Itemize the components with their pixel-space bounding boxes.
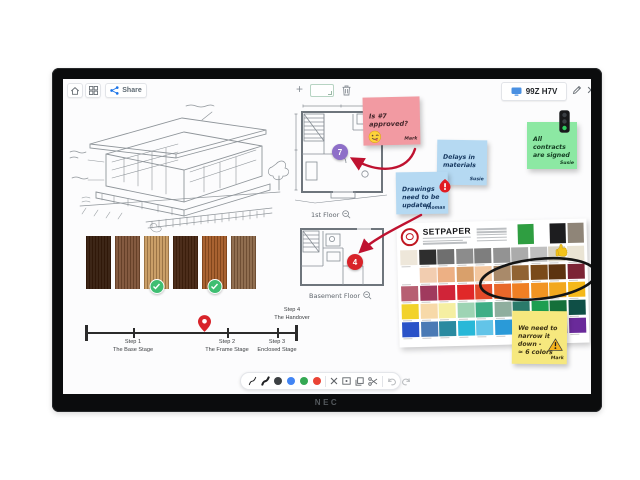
session-code-text: 99Z H7V — [526, 87, 558, 96]
redo-button[interactable] — [401, 377, 411, 386]
note-author: Mark — [404, 136, 417, 142]
timeline-step-number: Step 1 — [101, 338, 165, 346]
menu-button[interactable] — [85, 83, 101, 98]
copy-icon — [355, 377, 364, 386]
floor-plan-first-label: 1st Floor — [311, 210, 351, 219]
numbered-marker-7[interactable]: 7 — [332, 144, 348, 160]
home-icon — [70, 86, 80, 96]
home-button[interactable] — [67, 83, 83, 98]
palette-swatch — [567, 264, 584, 279]
timeline-tick — [227, 328, 229, 338]
toolbar-divider — [325, 376, 326, 387]
pencil-icon — [572, 85, 582, 95]
timeline-step-number: Step 3 — [245, 338, 309, 346]
palette-swatch — [512, 265, 529, 280]
palette-swatch — [530, 265, 547, 280]
palette-swatch — [493, 266, 510, 281]
palette-swatch — [568, 318, 585, 333]
share-button[interactable]: Share — [105, 83, 147, 98]
sticky-note-contracts-text: All contracts are signed — [533, 136, 570, 159]
timeline-step-label: Step 3Enclosed Stage — [245, 338, 309, 354]
nec-brand-logo: NEC — [52, 398, 602, 407]
timeline-step-name: Enclosed Stage — [245, 346, 309, 354]
traffic-light-icon — [559, 110, 570, 133]
warning-triangle-icon — [548, 338, 563, 351]
palette-swatch — [549, 264, 566, 279]
palette-swatch — [457, 321, 474, 336]
sticky-note-narrow-colors[interactable]: We need to narrow it down - ≈ 6 colors M… — [512, 311, 567, 364]
palette-swatch — [456, 249, 473, 264]
note-author: Thomas — [425, 206, 445, 212]
marker-stroke-icon — [261, 376, 270, 386]
note-author: Susie — [560, 161, 574, 167]
wood-swatch[interactable] — [202, 236, 227, 289]
palette-swatch — [438, 285, 455, 300]
palette-swatch — [419, 268, 436, 283]
close-button[interactable]: ✕ — [584, 83, 591, 97]
palette-swatch — [438, 267, 455, 282]
timeline[interactable]: Step 1The Base StageStep 2The Frame Stag… — [85, 319, 298, 365]
approved-check-icon — [207, 279, 222, 294]
floor-plan-basement[interactable] — [297, 226, 387, 288]
palette-top-swatch — [567, 223, 584, 243]
note-author: Susie — [470, 177, 484, 183]
palette-swatch — [475, 284, 492, 299]
palette-swatch — [456, 267, 473, 282]
winking-emoji-icon — [368, 130, 381, 143]
palette-swatch — [530, 247, 547, 262]
marker-tool-button[interactable] — [261, 376, 270, 386]
pen-tool-button[interactable] — [248, 376, 257, 386]
share-button-label: Share — [122, 87, 141, 94]
sticky-note-approval-text: Is #7 approved? — [369, 112, 408, 129]
palette-swatch — [474, 248, 491, 263]
wood-swatch[interactable] — [173, 236, 198, 289]
pen-stroke-icon — [248, 376, 257, 386]
palette-fine-print — [477, 227, 507, 242]
palette-swatch — [437, 249, 454, 264]
palette-top-swatches — [517, 223, 584, 245]
map-pin-icon[interactable] — [198, 315, 211, 332]
drawing-toolbar — [240, 372, 401, 390]
palette-swatch — [401, 286, 418, 301]
current-page-thumbnail[interactable] — [310, 84, 334, 97]
timeline-step-label: Step 4The Handover — [260, 306, 324, 322]
palette-top-swatch — [549, 223, 566, 243]
house-sketch-drawing[interactable] — [66, 100, 294, 238]
alert-drop-icon — [438, 178, 452, 193]
approved-check-icon — [149, 279, 164, 294]
palette-swatch — [421, 322, 438, 337]
palette-top-swatch — [517, 224, 534, 244]
numbered-marker-4[interactable]: 4 — [347, 254, 363, 270]
add-page-button[interactable]: + — [296, 82, 303, 96]
pen-color-dot[interactable] — [287, 377, 295, 385]
wood-swatch[interactable] — [86, 236, 111, 289]
whiteboard-screen: Share + 99Z H7V ✕ — [63, 79, 591, 394]
palette-swatch — [511, 247, 528, 262]
palette-swatch — [476, 320, 493, 335]
close-icon: ✕ — [586, 84, 591, 97]
palette-swatch — [493, 248, 510, 263]
delete-selection-button[interactable] — [330, 377, 338, 385]
sticky-note-approval[interactable]: Is #7 approved? Mark — [363, 96, 421, 145]
timeline-tick — [277, 328, 279, 338]
palette-swatch — [402, 322, 419, 337]
share-icon — [110, 86, 119, 95]
palette-swatch — [568, 282, 585, 297]
thumbs-up-icon — [555, 243, 569, 257]
floor-plan-basement-text: Basement Floor — [309, 292, 360, 300]
setpaper-logo-icon — [401, 228, 419, 246]
palette-swatch — [402, 304, 419, 319]
timeline-step-label: Step 1The Base Stage — [101, 338, 165, 354]
pen-color-dot[interactable] — [313, 377, 321, 385]
scissors-icon — [368, 377, 378, 386]
palette-swatch — [476, 302, 493, 317]
pen-color-dot[interactable] — [274, 377, 282, 385]
palette-swatch — [419, 249, 436, 264]
timeline-tick — [133, 328, 135, 338]
palette-swatch — [420, 286, 437, 301]
x-icon — [330, 377, 338, 385]
nec-display-monitor: Share + 99Z H7V ✕ — [52, 68, 602, 412]
palette-swatch — [400, 250, 417, 265]
delete-page-button[interactable] — [339, 83, 353, 97]
palette-swatch — [439, 321, 456, 336]
palette-swatch — [494, 284, 511, 299]
menu-grid-icon — [89, 86, 98, 95]
toolbar-divider — [382, 376, 383, 387]
palette-swatch — [457, 285, 474, 300]
timeline-line — [85, 332, 298, 334]
cast-screen-icon — [511, 87, 522, 96]
undo-icon — [387, 377, 397, 386]
palette-swatch — [420, 304, 437, 319]
edit-mode-button[interactable] — [570, 83, 584, 97]
timeline-step-number: Step 4 — [260, 306, 324, 314]
palette-swatch — [494, 320, 511, 335]
note-author: Mark — [551, 356, 564, 362]
palette-swatch — [401, 268, 418, 283]
palette-swatch — [439, 303, 456, 318]
undo-button[interactable] — [387, 377, 397, 386]
timeline-step-name: The Handover — [260, 314, 324, 322]
timeline-step-name: The Base Stage — [101, 346, 165, 354]
select-frame-button[interactable] — [342, 377, 351, 385]
wood-swatch[interactable] — [144, 236, 169, 289]
pen-color-dots — [274, 377, 321, 385]
palette-row — [401, 282, 585, 301]
palette-swatch — [475, 266, 492, 281]
timeline-start-cap — [85, 325, 88, 341]
duplicate-button[interactable] — [355, 377, 364, 386]
sticky-note-delays-text: Delays in materials — [443, 154, 476, 170]
wood-swatch-row — [86, 236, 256, 289]
floor-plan-first-text: 1st Floor — [311, 211, 339, 219]
trash-icon — [342, 85, 351, 96]
zoom-magnifier-icon[interactable] — [342, 210, 351, 219]
palette-swatch — [568, 300, 585, 315]
frame-icon — [342, 377, 351, 385]
wood-swatch[interactable] — [231, 236, 256, 289]
palette-swatch — [494, 302, 511, 317]
palette-swatch — [549, 282, 566, 297]
palette-swatch — [531, 283, 548, 298]
pen-color-dot[interactable] — [300, 377, 308, 385]
session-code-badge[interactable]: 99Z H7V — [501, 82, 567, 101]
floor-plan-basement-label: Basement Floor — [309, 291, 372, 300]
wood-swatch[interactable] — [115, 236, 140, 289]
zoom-magnifier-icon[interactable] — [363, 291, 372, 300]
palette-swatch — [567, 246, 584, 261]
palette-swatch — [512, 283, 529, 298]
redo-icon — [401, 377, 411, 386]
cut-button[interactable] — [368, 377, 378, 386]
palette-brand: SETPAPER — [423, 227, 472, 237]
palette-swatch — [457, 303, 474, 318]
